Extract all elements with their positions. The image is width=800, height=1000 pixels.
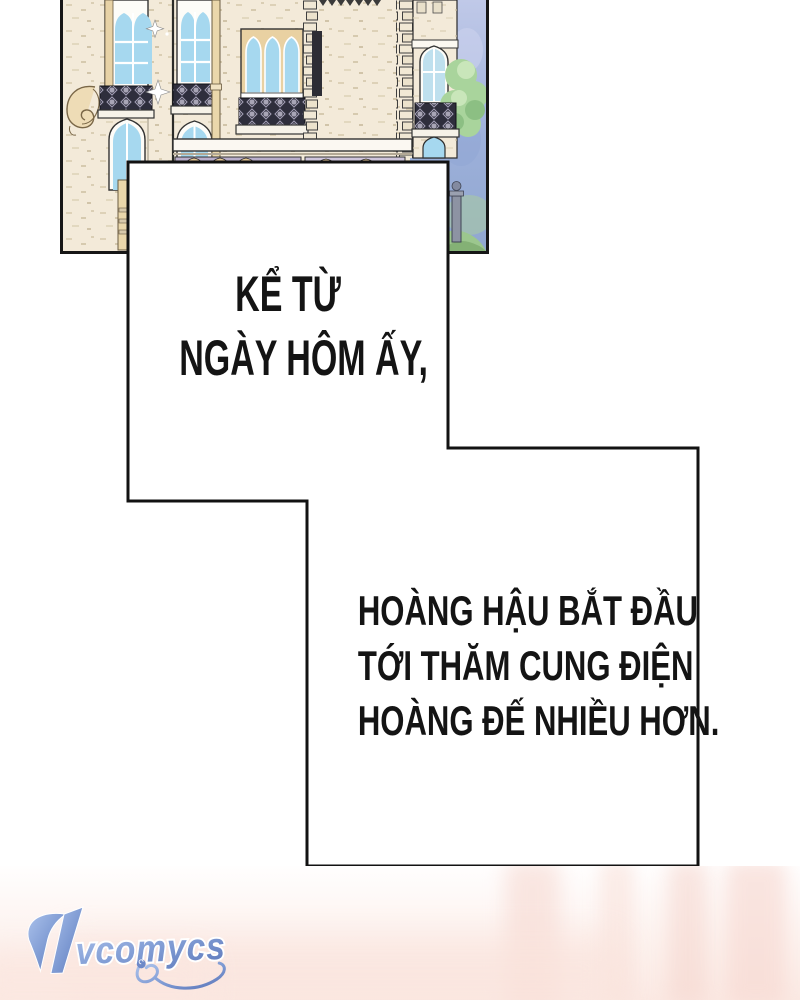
narration-line: HOÀNG HẬU BẮT ĐẦU [358,583,647,638]
pink-band [668,866,708,1000]
gothic-window-mid [177,0,213,86]
narration-line: TỚI THĂM CUNG ĐIỆN [358,638,647,693]
narration-box-2: HOÀNG HẬU BẮT ĐẦU TỚI THĂM CUNG ĐIỆN HOÀ… [307,448,698,748]
triple-gothic-window [241,29,303,98]
narration-line: NGÀY HÔM ẤY, [179,326,397,390]
narration-box-1: KỂ TỪ NGÀY HÔM ẤY, [128,162,448,390]
narration-line: KỂ TỪ [179,262,397,326]
gothic-window-left [105,0,152,88]
pink-band [726,866,786,1000]
balcony-railing-left [98,86,154,118]
balcony-railing-center [236,98,308,134]
vcomycs-watermark: VCOMYCS [20,898,252,998]
narration-line: HOÀNG ĐẾ NHIỀU HƠN. [358,693,647,748]
quoin-strip-right [396,0,413,158]
comic-page: KỂ TỪ NGÀY HÔM ẤY, HOÀNG HẬU BẮT ĐẦU TỚI… [0,0,800,1000]
dark-slit [312,31,322,96]
